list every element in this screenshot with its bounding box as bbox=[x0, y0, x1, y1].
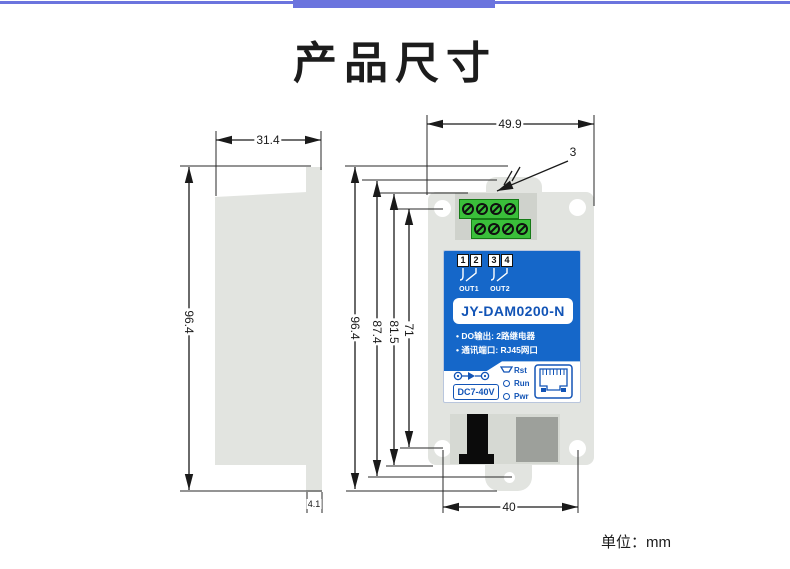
dim-side-flange: 4.1 bbox=[307, 499, 322, 509]
dim-front-width: 49.9 bbox=[496, 117, 523, 131]
dim-ear-hole-height: 87.4 bbox=[370, 318, 384, 345]
unit-note: 单位：mm bbox=[601, 531, 671, 552]
dim-tab-thickness: 3 bbox=[568, 145, 579, 159]
dim-body-height: 81.5 bbox=[387, 318, 401, 345]
dimension-lines bbox=[0, 0, 790, 569]
dimension-diagram-page: 产品尺寸 1 2 3 4 OUT1 OUT2 JY bbox=[0, 0, 790, 569]
dim-side-width: 31.4 bbox=[254, 133, 281, 147]
dim-side-height: 96.4 bbox=[182, 308, 196, 335]
dim-front-height: 96.4 bbox=[348, 314, 362, 341]
dim-hole-span: 40 bbox=[500, 500, 517, 514]
dim-hole-pitch: 71 bbox=[402, 321, 416, 338]
